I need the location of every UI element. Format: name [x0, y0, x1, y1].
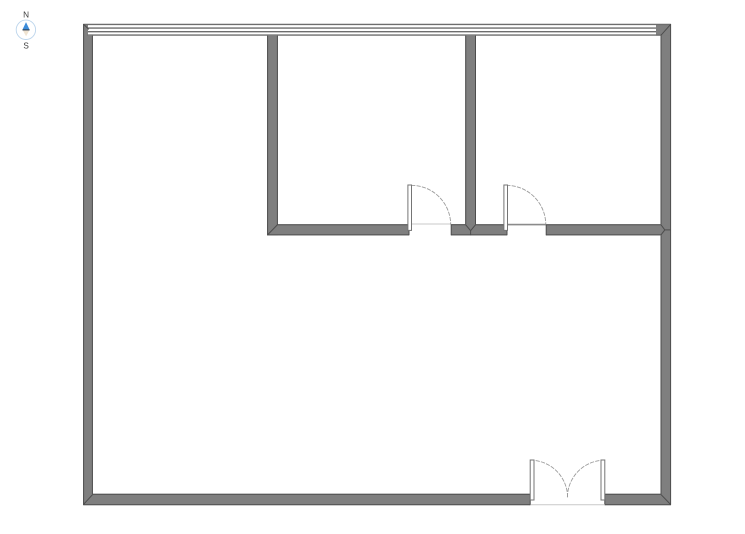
svg-text:N: N — [23, 10, 29, 19]
svg-text:S: S — [23, 41, 29, 50]
